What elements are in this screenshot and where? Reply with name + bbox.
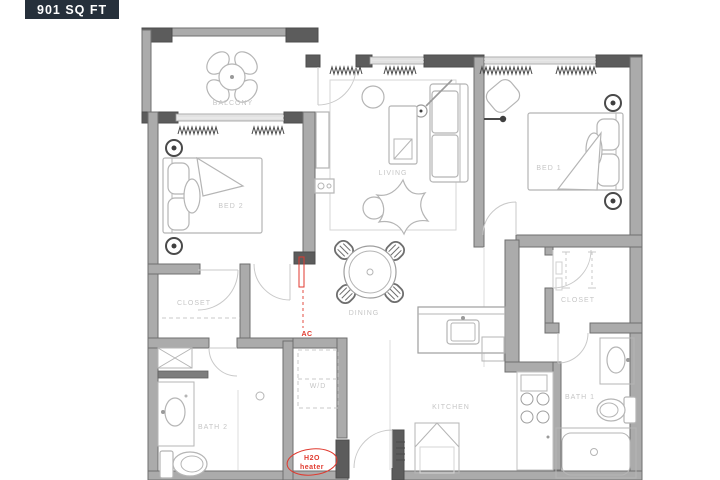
bedroom-2: BED 2 (163, 140, 262, 254)
kitchen-label: KITCHEN (432, 404, 470, 411)
wall-sconce-icon (484, 116, 506, 122)
sofa-icon (430, 84, 468, 182)
bed1-icon (528, 113, 623, 190)
bath1-vanity-icon (600, 338, 634, 384)
bedroom-1: BED 1 (483, 76, 623, 209)
toilet-icon (597, 397, 636, 423)
pouf-icon (362, 86, 384, 108)
console-icon (316, 112, 329, 168)
closet-bed2: CLOSET (162, 300, 240, 318)
floor-plan-page: 901 SQ FT (0, 0, 720, 480)
kitchen-island-icon (418, 307, 505, 353)
living-room: LIVING (315, 80, 468, 234)
toilet-icon (160, 451, 207, 478)
stove-counter-icon (517, 372, 553, 470)
bed2-icon (163, 158, 262, 233)
balcony-label: BALCONY (213, 100, 253, 107)
bath2-label: BATH 2 (198, 424, 228, 431)
laundry-label: W/D (310, 383, 327, 390)
bed2-label: BED 2 (218, 203, 243, 210)
kitchen: KITCHEN (415, 307, 553, 473)
shower-icon (158, 348, 192, 368)
balcony-table-set-icon (202, 47, 261, 106)
washer-dryer-icon (298, 350, 338, 408)
closet-bed1-label: CLOSET (561, 297, 595, 304)
bathroom-2: BATH 2 (158, 348, 264, 478)
balcony: BALCONY (202, 47, 261, 107)
water-heater-line2: heater (300, 464, 324, 471)
closet-rod-icon (562, 252, 596, 288)
living-label: LIVING (379, 170, 408, 177)
ac-annotation: AC (299, 257, 313, 338)
entry-cabinet-icon (415, 423, 459, 473)
bath2-shelf-icon (158, 371, 208, 378)
bedroom-chair-icon (483, 76, 523, 115)
bath1-label: BATH 1 (565, 394, 595, 401)
throw-rug-icon (377, 180, 428, 234)
closet-bed2-label: CLOSET (177, 300, 211, 307)
floor-plan: BALCONY BED 2 (0, 0, 720, 480)
dining-label: DINING (349, 310, 380, 317)
bed1-label: BED 1 (536, 165, 561, 172)
side-table-icon (315, 179, 334, 193)
bath2-vanity-icon (158, 382, 194, 446)
ac-label: AC (301, 331, 312, 338)
coffee-table-icon (389, 106, 417, 164)
dining-set-icon (332, 238, 407, 306)
paper-holder-icon (256, 392, 264, 400)
dining-area: DINING (332, 238, 407, 317)
bathroom-1: BATH 1 (556, 338, 636, 478)
water-heater-line1: H2O (304, 455, 320, 462)
laundry-closet: W/D AC H2O heater (286, 257, 338, 478)
